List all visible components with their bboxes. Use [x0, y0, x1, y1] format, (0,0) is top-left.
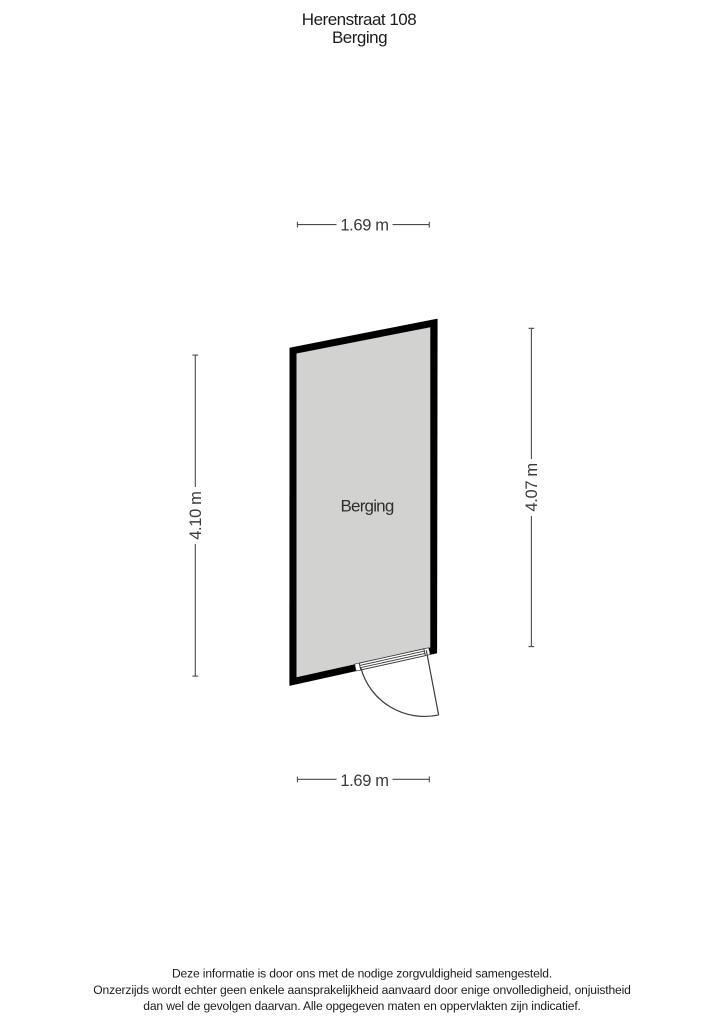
- svg-text:Onzerzijds wordt echter geen e: Onzerzijds wordt echter geen enkele aans…: [93, 983, 631, 997]
- svg-text:Berging: Berging: [341, 496, 394, 515]
- svg-text:1.69 m: 1.69 m: [340, 772, 388, 790]
- svg-text:4.10 m: 4.10 m: [187, 491, 205, 539]
- svg-text:Herenstraat 108: Herenstraat 108: [302, 10, 416, 29]
- svg-text:1.69 m: 1.69 m: [340, 216, 388, 234]
- svg-text:Berging: Berging: [332, 28, 387, 47]
- svg-text:4.07 m: 4.07 m: [523, 463, 541, 511]
- svg-text:dan wel de gevolgen daarvan. A: dan wel de gevolgen daarvan. Alle opgege…: [143, 999, 581, 1013]
- svg-text:Deze informatie is door ons me: Deze informatie is door ons met de nodig…: [172, 967, 552, 981]
